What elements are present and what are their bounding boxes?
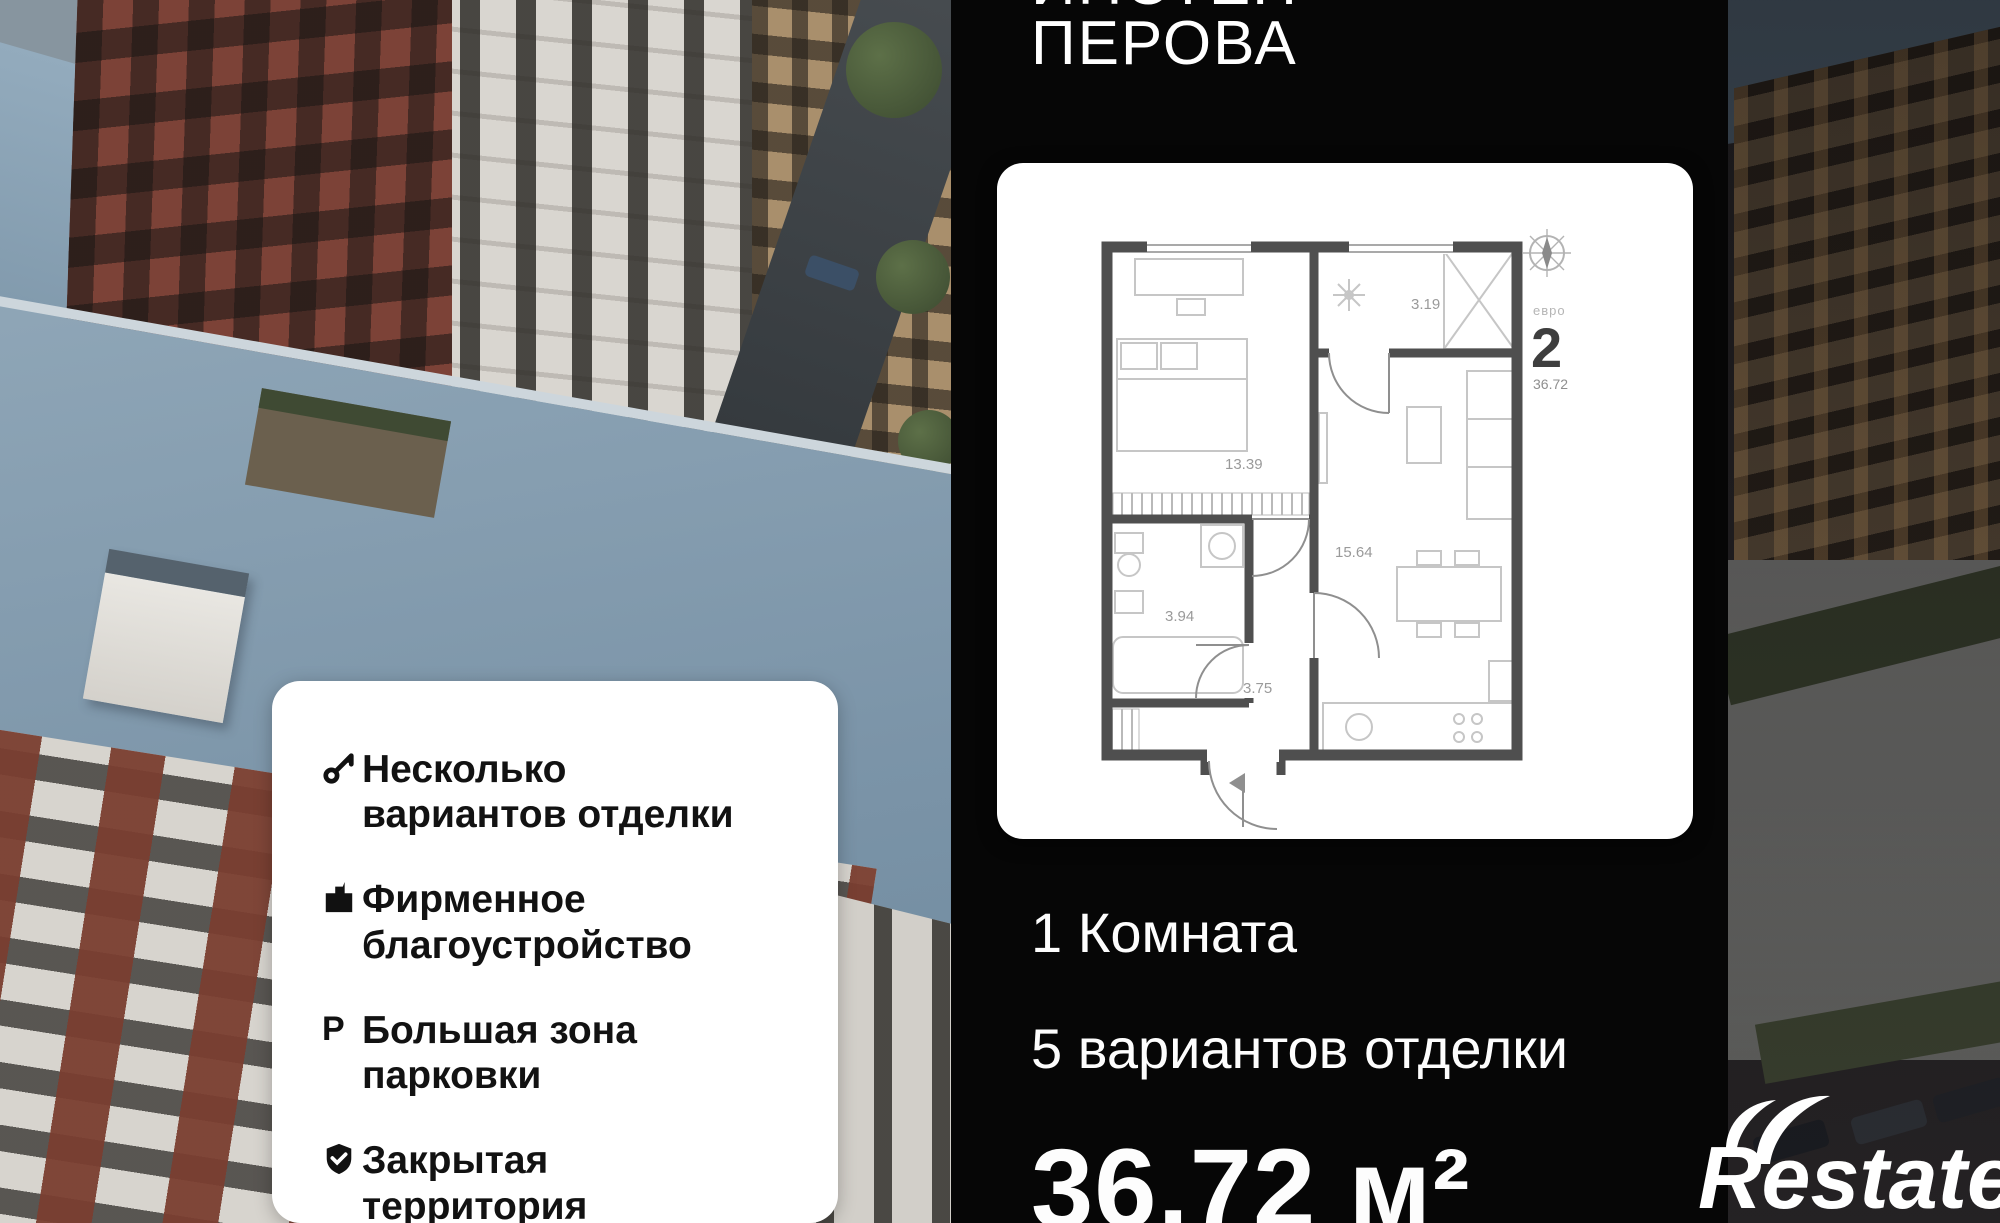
parking-icon: P (322, 1012, 362, 1052)
hall-closet (1111, 709, 1139, 751)
feature-text: Большая зона парковки (362, 1008, 637, 1098)
restate-logo: Restate (1688, 1092, 2000, 1222)
dusk-tint-overlay (1728, 0, 2000, 1223)
feature-gated-area: Закрытая территория (322, 1138, 802, 1223)
room-area-bedroom: 13.39 (1225, 456, 1263, 473)
dusk-building-photo (1728, 0, 2000, 1223)
building-icon (322, 881, 362, 921)
roof-chimney (83, 549, 249, 723)
tree (876, 240, 950, 314)
real-estate-promo-banner: ИНСТЕП ПЕРОВА (0, 0, 2000, 1223)
area-text: 36.72 м² (1031, 1124, 1471, 1223)
finish-options-text: 5 вариантов отделки (1031, 1016, 1568, 1081)
floorplan-card: евро 2 36.72 13.39 3.19 15.64 3.94 3.75 (997, 163, 1693, 839)
tree (846, 22, 942, 118)
key-icon (322, 751, 362, 791)
plan-area-value: 36.72 (1533, 376, 1568, 392)
room-area-hallway: 3.75 (1243, 680, 1272, 697)
room-area-bathroom: 3.94 (1165, 608, 1194, 625)
shield-check-icon (322, 1142, 362, 1182)
feature-text: Несколько вариантов отделки (362, 747, 734, 837)
room-area-balcony: 3.19 (1411, 296, 1440, 313)
feature-text: Закрытая территория (362, 1138, 587, 1223)
features-card: Несколько вариантов отделки Фирменное бл… (272, 681, 838, 1223)
logo-text: Restate (1698, 1128, 2000, 1222)
room-area-living: 15.64 (1335, 544, 1373, 561)
project-title-line2: ПЕРОВА (1031, 8, 1298, 79)
feature-text: Фирменное благоустройство (362, 877, 692, 967)
feature-landscaping: Фирменное благоустройство (322, 877, 802, 967)
feature-finish-options: Несколько вариантов отделки (322, 747, 802, 837)
feature-parking: P Большая зона парковки (322, 1008, 802, 1098)
balcony-plant (1333, 279, 1365, 311)
rooms-count-text: 1 Комната (1031, 900, 1297, 965)
wardrobe (1113, 493, 1309, 515)
floorplan-drawing: евро 2 36.72 13.39 3.19 15.64 3.94 3.75 (997, 163, 1693, 839)
plan-type-number: 2 (1531, 316, 1562, 379)
info-panel: ИНСТЕП ПЕРОВА (951, 0, 1728, 1223)
compass-icon (1523, 229, 1571, 277)
